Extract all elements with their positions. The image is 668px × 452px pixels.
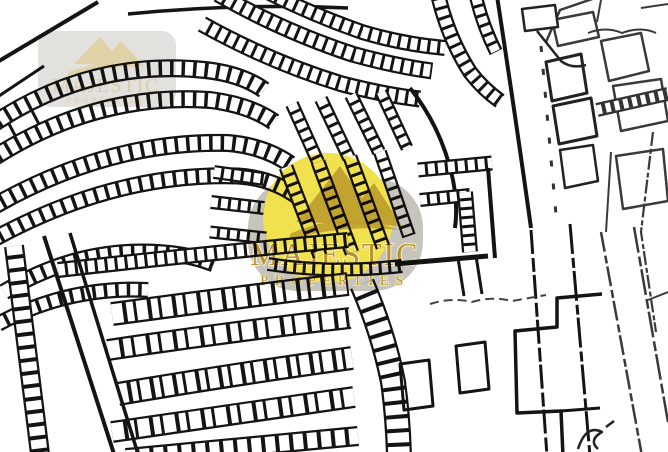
- building-outline: [616, 149, 668, 209]
- brand-subtitle: PROPERTIES: [260, 273, 410, 289]
- building-outline: [553, 98, 597, 144]
- sketch-line: [606, 152, 611, 232]
- brand-wordmark-faint: MAJESTIC: [52, 75, 160, 97]
- brand-wordmark: MAJESTIC: [251, 236, 420, 272]
- brand-subtitle-faint: PROPERTIES: [67, 96, 146, 105]
- building-outline: [546, 54, 587, 101]
- sketch-line: [601, 232, 642, 452]
- cadastral-map-svg: MAJESTIC PROPERTIES MAJESTIC PROPERTIES: [0, 0, 668, 452]
- watermark-center: MAJESTIC PROPERTIES: [248, 153, 423, 291]
- watermark-top-left: MAJESTIC PROPERTIES: [38, 31, 176, 107]
- sketch-line: [597, 0, 668, 22]
- sketch-line: [578, 421, 614, 449]
- road-line: [531, 230, 547, 452]
- map-canvas: MAJESTIC PROPERTIES MAJESTIC PROPERTIES: [0, 0, 668, 452]
- building-outline: [560, 145, 598, 188]
- building-outline: [561, 408, 600, 411]
- sketch-line: [430, 295, 546, 304]
- building-outline: [456, 342, 489, 393]
- sketch-line: [641, 132, 656, 332]
- road-line: [497, 0, 531, 228]
- parcel-row: [474, 0, 496, 52]
- building-outline: [601, 33, 649, 81]
- road-line: [570, 224, 590, 452]
- road-line: [488, 168, 495, 258]
- building-outline: [522, 5, 558, 31]
- road-line: [458, 256, 482, 296]
- sketch-line: [634, 227, 668, 422]
- building-outline: [552, 12, 599, 46]
